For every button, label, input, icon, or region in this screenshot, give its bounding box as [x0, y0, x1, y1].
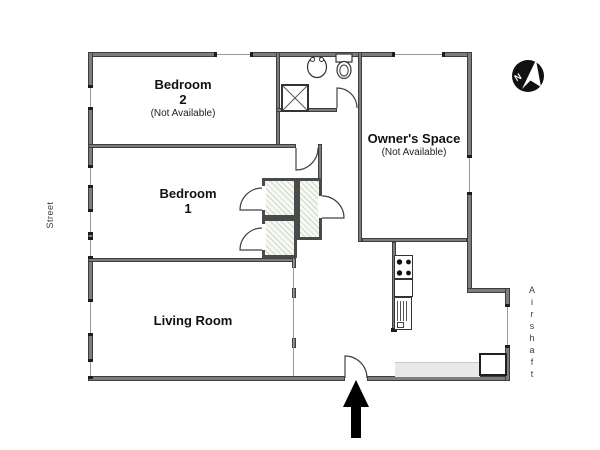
entrance-arrow-icon — [343, 380, 369, 438]
room-number: 2 — [93, 92, 273, 107]
sink-icon — [308, 57, 327, 78]
toilet-icon — [336, 54, 352, 79]
shower-x — [283, 86, 307, 110]
north-arrow-icon: N — [512, 60, 544, 92]
bedroom1-label: Bedroom 1 — [93, 186, 283, 216]
owners-space-label: Owner's Space (Not Available) — [361, 131, 467, 159]
room-note: (Not Available) — [93, 107, 273, 120]
bedroom1-door-swing — [296, 148, 318, 170]
room-name: Bedroom — [93, 186, 283, 201]
room-name: Bedroom — [93, 77, 273, 92]
room-name: Owner's Space — [361, 131, 467, 146]
stove-burners — [397, 259, 411, 275]
closet-lower-door-swing — [240, 228, 262, 250]
airshaft-label: Airshaft — [527, 285, 537, 385]
room-note: (Not Available) — [361, 146, 467, 159]
bedroom2-label: Bedroom 2 (Not Available) — [93, 77, 273, 120]
room-number: 1 — [93, 201, 283, 216]
entrance-door-swing — [345, 356, 367, 378]
street-label: Street — [31, 191, 69, 239]
hall-closet-door-swing — [322, 196, 344, 218]
room-name: Living Room — [93, 313, 293, 328]
bathroom-door-swing — [337, 88, 357, 108]
floor-plan: N Bedroom 2 (Not Available) Bedroom 1 Li… — [0, 0, 600, 450]
living-room-label: Living Room — [93, 313, 293, 328]
symbol-overlay: N — [0, 0, 600, 450]
